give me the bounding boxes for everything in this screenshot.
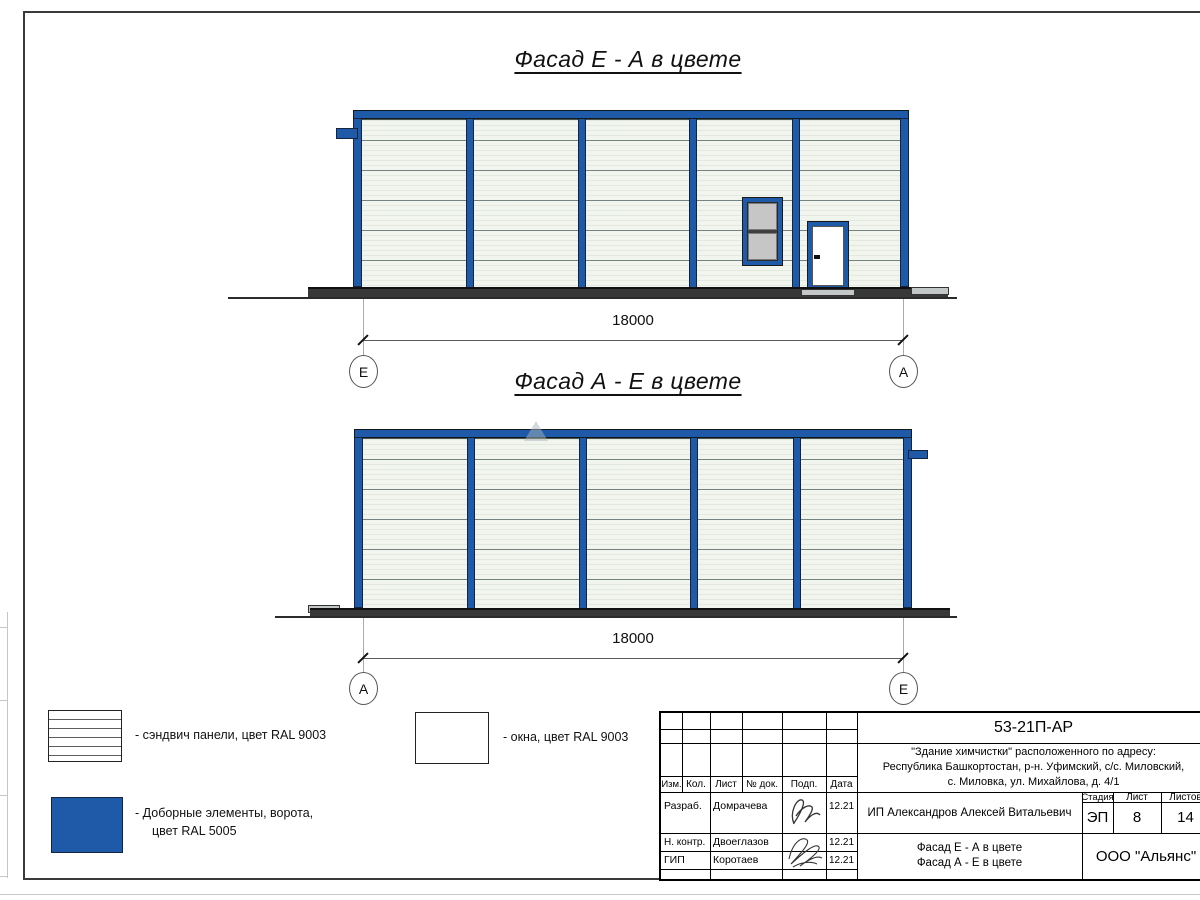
sandwich-panels <box>362 438 904 608</box>
row1-date: 12.21 <box>826 798 857 814</box>
legend-label-elements-line2: цвет RAL 5005 <box>152 824 237 838</box>
margin-tick <box>0 627 7 628</box>
title-block-line <box>661 869 857 870</box>
window <box>743 198 782 265</box>
project-address-line2: Республика Башкортостан, р-н. Уфимский, … <box>857 760 1200 775</box>
corner-column <box>354 437 363 608</box>
margin-column-line <box>7 612 8 878</box>
doc-number: 53-21П-АР <box>857 713 1200 743</box>
window-pane-bottom <box>748 233 777 260</box>
row1-role: Разраб. <box>664 798 710 814</box>
panel-joint-line <box>363 459 903 460</box>
corner-column <box>353 118 362 287</box>
col-kol: Кол. <box>682 776 710 792</box>
ground-base <box>310 608 950 616</box>
title-block-line <box>661 729 857 730</box>
signature-kontr-gip <box>783 831 827 875</box>
company-name: ООО "Альянс" <box>1082 833 1200 879</box>
col-podp: Подп. <box>782 776 826 792</box>
gutter-outlet <box>336 128 358 139</box>
title-block-line <box>710 713 711 879</box>
stage-value: ЭП <box>1082 802 1113 833</box>
corner-column <box>903 437 912 608</box>
col-ndok: № док. <box>742 776 782 792</box>
dimension-line <box>363 658 903 659</box>
drawing-name-line2: Фасад А - Е в цвете <box>917 856 1022 871</box>
row2-name: Двоеглазов <box>713 834 781 850</box>
panel-joint-line <box>362 170 900 171</box>
list-label: Лист <box>1113 792 1161 802</box>
signature-razrab <box>785 794 825 832</box>
roof-band <box>354 429 912 438</box>
listov-value: 14 <box>1161 802 1200 833</box>
watermark <box>524 421 548 441</box>
mullion <box>579 438 587 608</box>
mullion <box>690 438 698 608</box>
door-handle-icon <box>814 255 820 259</box>
facade2-title: Фасад А - Е в цвете <box>328 368 928 395</box>
scan-bottom-edge <box>0 894 1200 895</box>
legend-label-windows: - окна, цвет RAL 9003 <box>503 730 628 744</box>
facade1-title: Фасад Е - А в цвете <box>328 46 928 73</box>
col-data: Дата <box>826 776 857 792</box>
title-block-line <box>661 743 1200 744</box>
facade-a-e-drawing <box>354 429 912 608</box>
mullion <box>467 438 475 608</box>
mullion <box>689 119 697 287</box>
margin-tick <box>0 700 7 701</box>
dimension-value: 18000 <box>363 312 903 329</box>
legend-swatch-panels <box>48 710 122 762</box>
row1-name: Домрачева <box>713 798 781 814</box>
dimension-line <box>363 340 903 341</box>
margin-tick <box>0 795 7 796</box>
row3-name: Коротаев <box>713 852 781 868</box>
listov-label: Листов <box>1161 792 1200 802</box>
gutter-outlet <box>908 450 928 459</box>
panel-joint-line <box>363 549 903 550</box>
row2-date: 12.21 <box>826 834 857 850</box>
mullion <box>578 119 586 287</box>
mullion <box>466 119 474 287</box>
axis-marker-left: А <box>349 672 378 705</box>
drawing-name: Фасад Е - А в цвете Фасад А - Е в цвете <box>857 833 1082 879</box>
frame-left-line <box>23 11 25 880</box>
legend-swatch-windows <box>415 712 489 764</box>
door <box>808 222 848 290</box>
axis-marker-right: Е <box>889 672 918 705</box>
mullion <box>793 438 801 608</box>
row3-role: ГИП <box>664 852 710 868</box>
project-address: "Здание химчистки" расположенного по адр… <box>857 745 1200 792</box>
legend-label-elements-line1: - Доборные элементы, ворота, <box>135 806 313 820</box>
title-block: Изм. Кол. Лист № док. Подп. Дата Разраб.… <box>659 711 1200 881</box>
side-step <box>911 287 949 295</box>
corner-column <box>900 118 909 287</box>
client-name: ИП Александров Алексей Витальевич <box>857 792 1082 833</box>
window-pane-top <box>748 203 777 230</box>
roof-band <box>353 110 909 119</box>
mullion <box>792 119 800 287</box>
margin-tick <box>0 876 7 877</box>
witness-line <box>903 618 904 673</box>
frame-top-line <box>23 11 1200 13</box>
witness-line <box>903 299 904 356</box>
list-value: 8 <box>1113 802 1161 833</box>
col-izm: Изм. <box>661 776 682 792</box>
legend-swatch-elements <box>51 797 123 853</box>
dimension-value: 18000 <box>363 630 903 647</box>
panel-joint-line <box>363 489 903 490</box>
col-list: Лист <box>710 776 742 792</box>
panel-joint-line <box>363 579 903 580</box>
ground-line <box>275 616 957 618</box>
stage-label: Стадия <box>1082 792 1113 802</box>
panel-joint-line <box>362 140 900 141</box>
drawing-name-line1: Фасад Е - А в цвете <box>917 841 1022 856</box>
legend-label-panels: - сэндвич панели, цвет RAL 9003 <box>135 728 326 742</box>
row2-role: Н. контр. <box>664 834 710 850</box>
ground-line <box>228 297 957 299</box>
project-address-line3: с. Миловка, ул. Михайлова, д. 4/1 <box>857 775 1200 790</box>
panel-joint-line <box>363 519 903 520</box>
row3-date: 12.21 <box>826 852 857 868</box>
door-threshold <box>801 289 855 296</box>
panel-joint-line <box>362 200 900 201</box>
project-address-line1: "Здание химчистки" расположенного по адр… <box>857 745 1200 760</box>
